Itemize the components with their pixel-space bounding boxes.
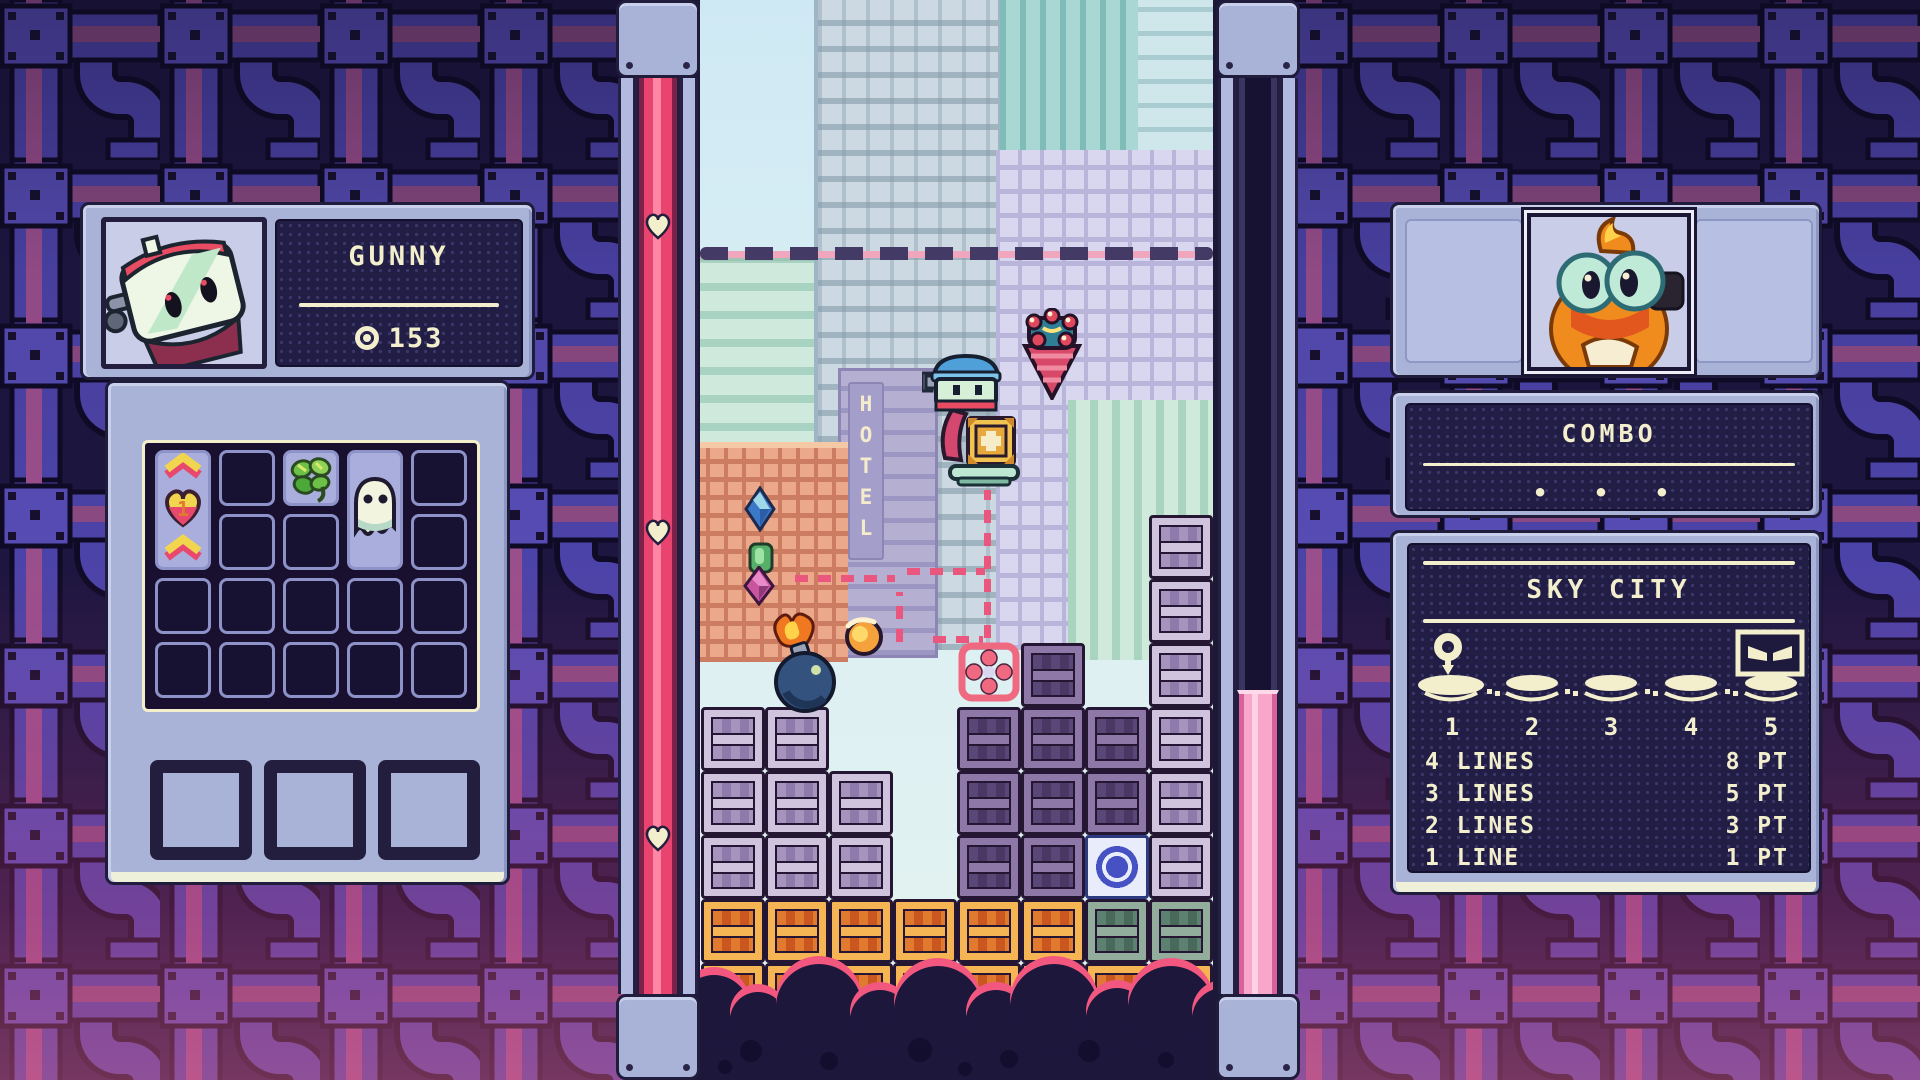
cloud-bump	[776, 964, 862, 1050]
scoring-row: 3 LINES 5 PT	[1425, 781, 1789, 807]
inventory-cell-empty	[219, 514, 275, 570]
inventory-cell-empty	[347, 578, 403, 634]
left-portrait-frame	[101, 217, 267, 369]
item-slot-2	[264, 760, 366, 860]
scoring-lines: 1 LINE	[1425, 845, 1520, 871]
checkpoint-3: 3	[1596, 713, 1626, 741]
heart-icon	[643, 212, 673, 240]
item-slot-1	[150, 760, 252, 860]
combo-plate: COMBO • • •	[1405, 403, 1813, 511]
stage-line-top	[1423, 561, 1795, 565]
inventory-item-clover	[283, 450, 339, 506]
inventory-cell-empty	[219, 642, 275, 698]
score-value: 153	[389, 323, 444, 354]
combo-card: COMBO • • •	[1390, 390, 1822, 518]
inventory-cell-empty	[411, 450, 467, 506]
inventory-cell-empty	[155, 642, 211, 698]
left-inventory-panel: 1	[105, 380, 510, 885]
combo-divider	[1423, 463, 1795, 466]
stage-name: SKY CITY	[1409, 575, 1809, 605]
scoring-row: 2 LINES 3 PT	[1425, 813, 1789, 839]
cloud-bump	[1010, 964, 1098, 1052]
cloud-hole	[958, 1062, 972, 1076]
scoring-points: 1 PT	[1726, 845, 1789, 871]
inventory-cell-empty	[219, 578, 275, 634]
left-player-card: GUNNY 153	[80, 202, 535, 380]
scoring-points: 8 PT	[1726, 749, 1789, 775]
scoring-lines: 3 LINES	[1425, 781, 1536, 807]
heart-item-count: 1	[158, 497, 208, 521]
right-player-card	[1390, 202, 1822, 378]
left-meter-bottom-cap	[616, 994, 700, 1080]
scoring-row: 4 LINES 8 PT	[1425, 749, 1789, 775]
game-screen: { "left_player": { "name": "GUNNY", "sco…	[0, 0, 1920, 1080]
scoring-points: 3 PT	[1726, 813, 1789, 839]
inventory-cell-empty	[411, 642, 467, 698]
right-meter-fill	[1237, 690, 1279, 994]
checkpoint-4: 4	[1676, 713, 1706, 741]
player-name: GUNNY	[277, 241, 521, 272]
rival-bird-avatar	[1531, 217, 1687, 367]
right-card-side-right	[1695, 219, 1813, 363]
boss-eyes-icon	[1735, 629, 1805, 677]
cloud-hole	[1158, 1052, 1174, 1068]
combo-label: COMBO	[1407, 419, 1811, 448]
cloud-hole	[1078, 1040, 1100, 1062]
scoring-lines: 2 LINES	[1425, 813, 1536, 839]
score-row: 153	[277, 323, 521, 354]
combo-dots: • • •	[1407, 479, 1811, 507]
inventory-item-ghost	[347, 450, 403, 570]
scoring-lines: 4 LINES	[1425, 749, 1536, 775]
left-meter-top-cap	[616, 0, 700, 78]
left-meter-track	[618, 78, 698, 994]
stage-line-bottom	[1423, 619, 1795, 623]
name-divider	[299, 303, 499, 307]
inventory-cell-empty	[411, 514, 467, 570]
playfield: HOTEL	[690, 0, 1223, 1080]
ghost-icon	[350, 475, 400, 545]
inventory-cell-empty	[347, 642, 403, 698]
inventory-cell-empty	[283, 514, 339, 570]
cloud-hole	[718, 1060, 732, 1074]
inventory-cell-empty	[155, 578, 211, 634]
checkpoint-1: 1	[1437, 713, 1467, 741]
cloud-hole	[740, 1040, 762, 1062]
inventory-cell-empty	[283, 642, 339, 698]
checkpoint-5: 5	[1756, 713, 1786, 741]
right-meter-track	[1218, 78, 1298, 994]
cloud-hole	[820, 1052, 838, 1070]
item-slot-3	[378, 760, 480, 860]
right-card-side-left	[1405, 219, 1523, 363]
target-coin-icon	[355, 326, 379, 350]
cloud-layer	[700, 0, 1213, 1080]
heart-icon	[643, 518, 673, 546]
heart-icon	[643, 824, 673, 852]
right-meter-empty	[1237, 78, 1279, 690]
checkpoint-2: 2	[1517, 713, 1547, 741]
stage-plate: SKY CITY	[1407, 543, 1811, 873]
cloud-hole	[908, 1038, 932, 1062]
checkpoint-map	[1417, 671, 1805, 709]
inventory-cell-empty	[219, 450, 275, 506]
right-meter-top-cap	[1216, 0, 1300, 78]
inventory-cell-empty	[283, 578, 339, 634]
left-name-plate: GUNNY 153	[275, 219, 523, 367]
stage-card: SKY CITY	[1390, 530, 1822, 895]
inventory-grid: 1	[142, 440, 480, 712]
right-portrait-frame	[1527, 213, 1691, 371]
cloud-hole	[1000, 1050, 1018, 1068]
gunny-avatar	[106, 222, 262, 364]
right-meter-bottom-cap	[1216, 994, 1300, 1080]
inventory-cell-empty	[411, 578, 467, 634]
scoring-row: 1 LINE 1 PT	[1425, 845, 1789, 871]
inventory-item-boost: 1	[155, 450, 211, 570]
scoring-points: 5 PT	[1726, 781, 1789, 807]
clover-icon	[286, 453, 336, 503]
